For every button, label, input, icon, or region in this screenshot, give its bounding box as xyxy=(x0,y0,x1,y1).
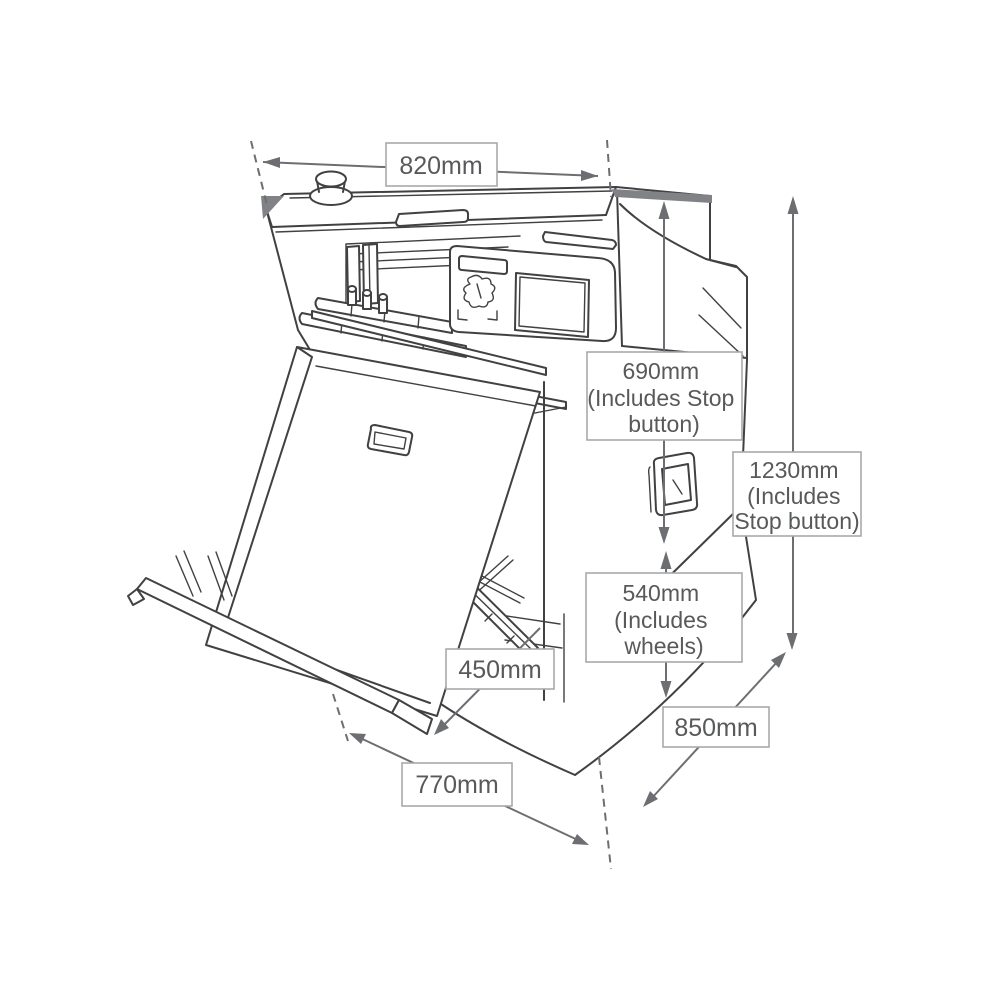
dimension-label-820mm: 820mm xyxy=(386,143,497,186)
dimension-label-450mm: 450mm xyxy=(446,649,554,689)
extension-line xyxy=(251,141,268,209)
dimension-label-770mm: 770mm xyxy=(402,763,512,806)
emergency-stop-button xyxy=(310,172,352,206)
dimension-value: 820mm xyxy=(399,152,482,180)
dimension-value: 450mm xyxy=(458,656,541,684)
control-panel xyxy=(450,246,616,341)
diagram-canvas: 820mm 690mm (Includes Stop button) 1230m… xyxy=(0,0,1000,1000)
dimension-diagram: 820mm 690mm (Includes Stop button) 1230m… xyxy=(0,0,1000,1000)
extension-line xyxy=(333,694,348,741)
dimension-label-690mm: 690mm (Includes Stop button) xyxy=(587,352,742,440)
status-display xyxy=(459,256,507,274)
dimension-label-540mm: 540mm (Includes wheels) xyxy=(586,573,742,662)
dimension-value: 770mm xyxy=(415,771,498,799)
dimension-label-850mm: 850mm xyxy=(663,707,769,747)
dimension-value: 1230mm (Includes Stop button) xyxy=(734,457,859,534)
dimension-label-1230mm: 1230mm (Includes Stop button) xyxy=(733,452,861,536)
dimension-value: 540mm (Includes wheels) xyxy=(614,580,714,659)
power-switch xyxy=(649,453,697,515)
extension-line xyxy=(599,757,611,869)
dimension-value: 850mm xyxy=(674,714,757,742)
